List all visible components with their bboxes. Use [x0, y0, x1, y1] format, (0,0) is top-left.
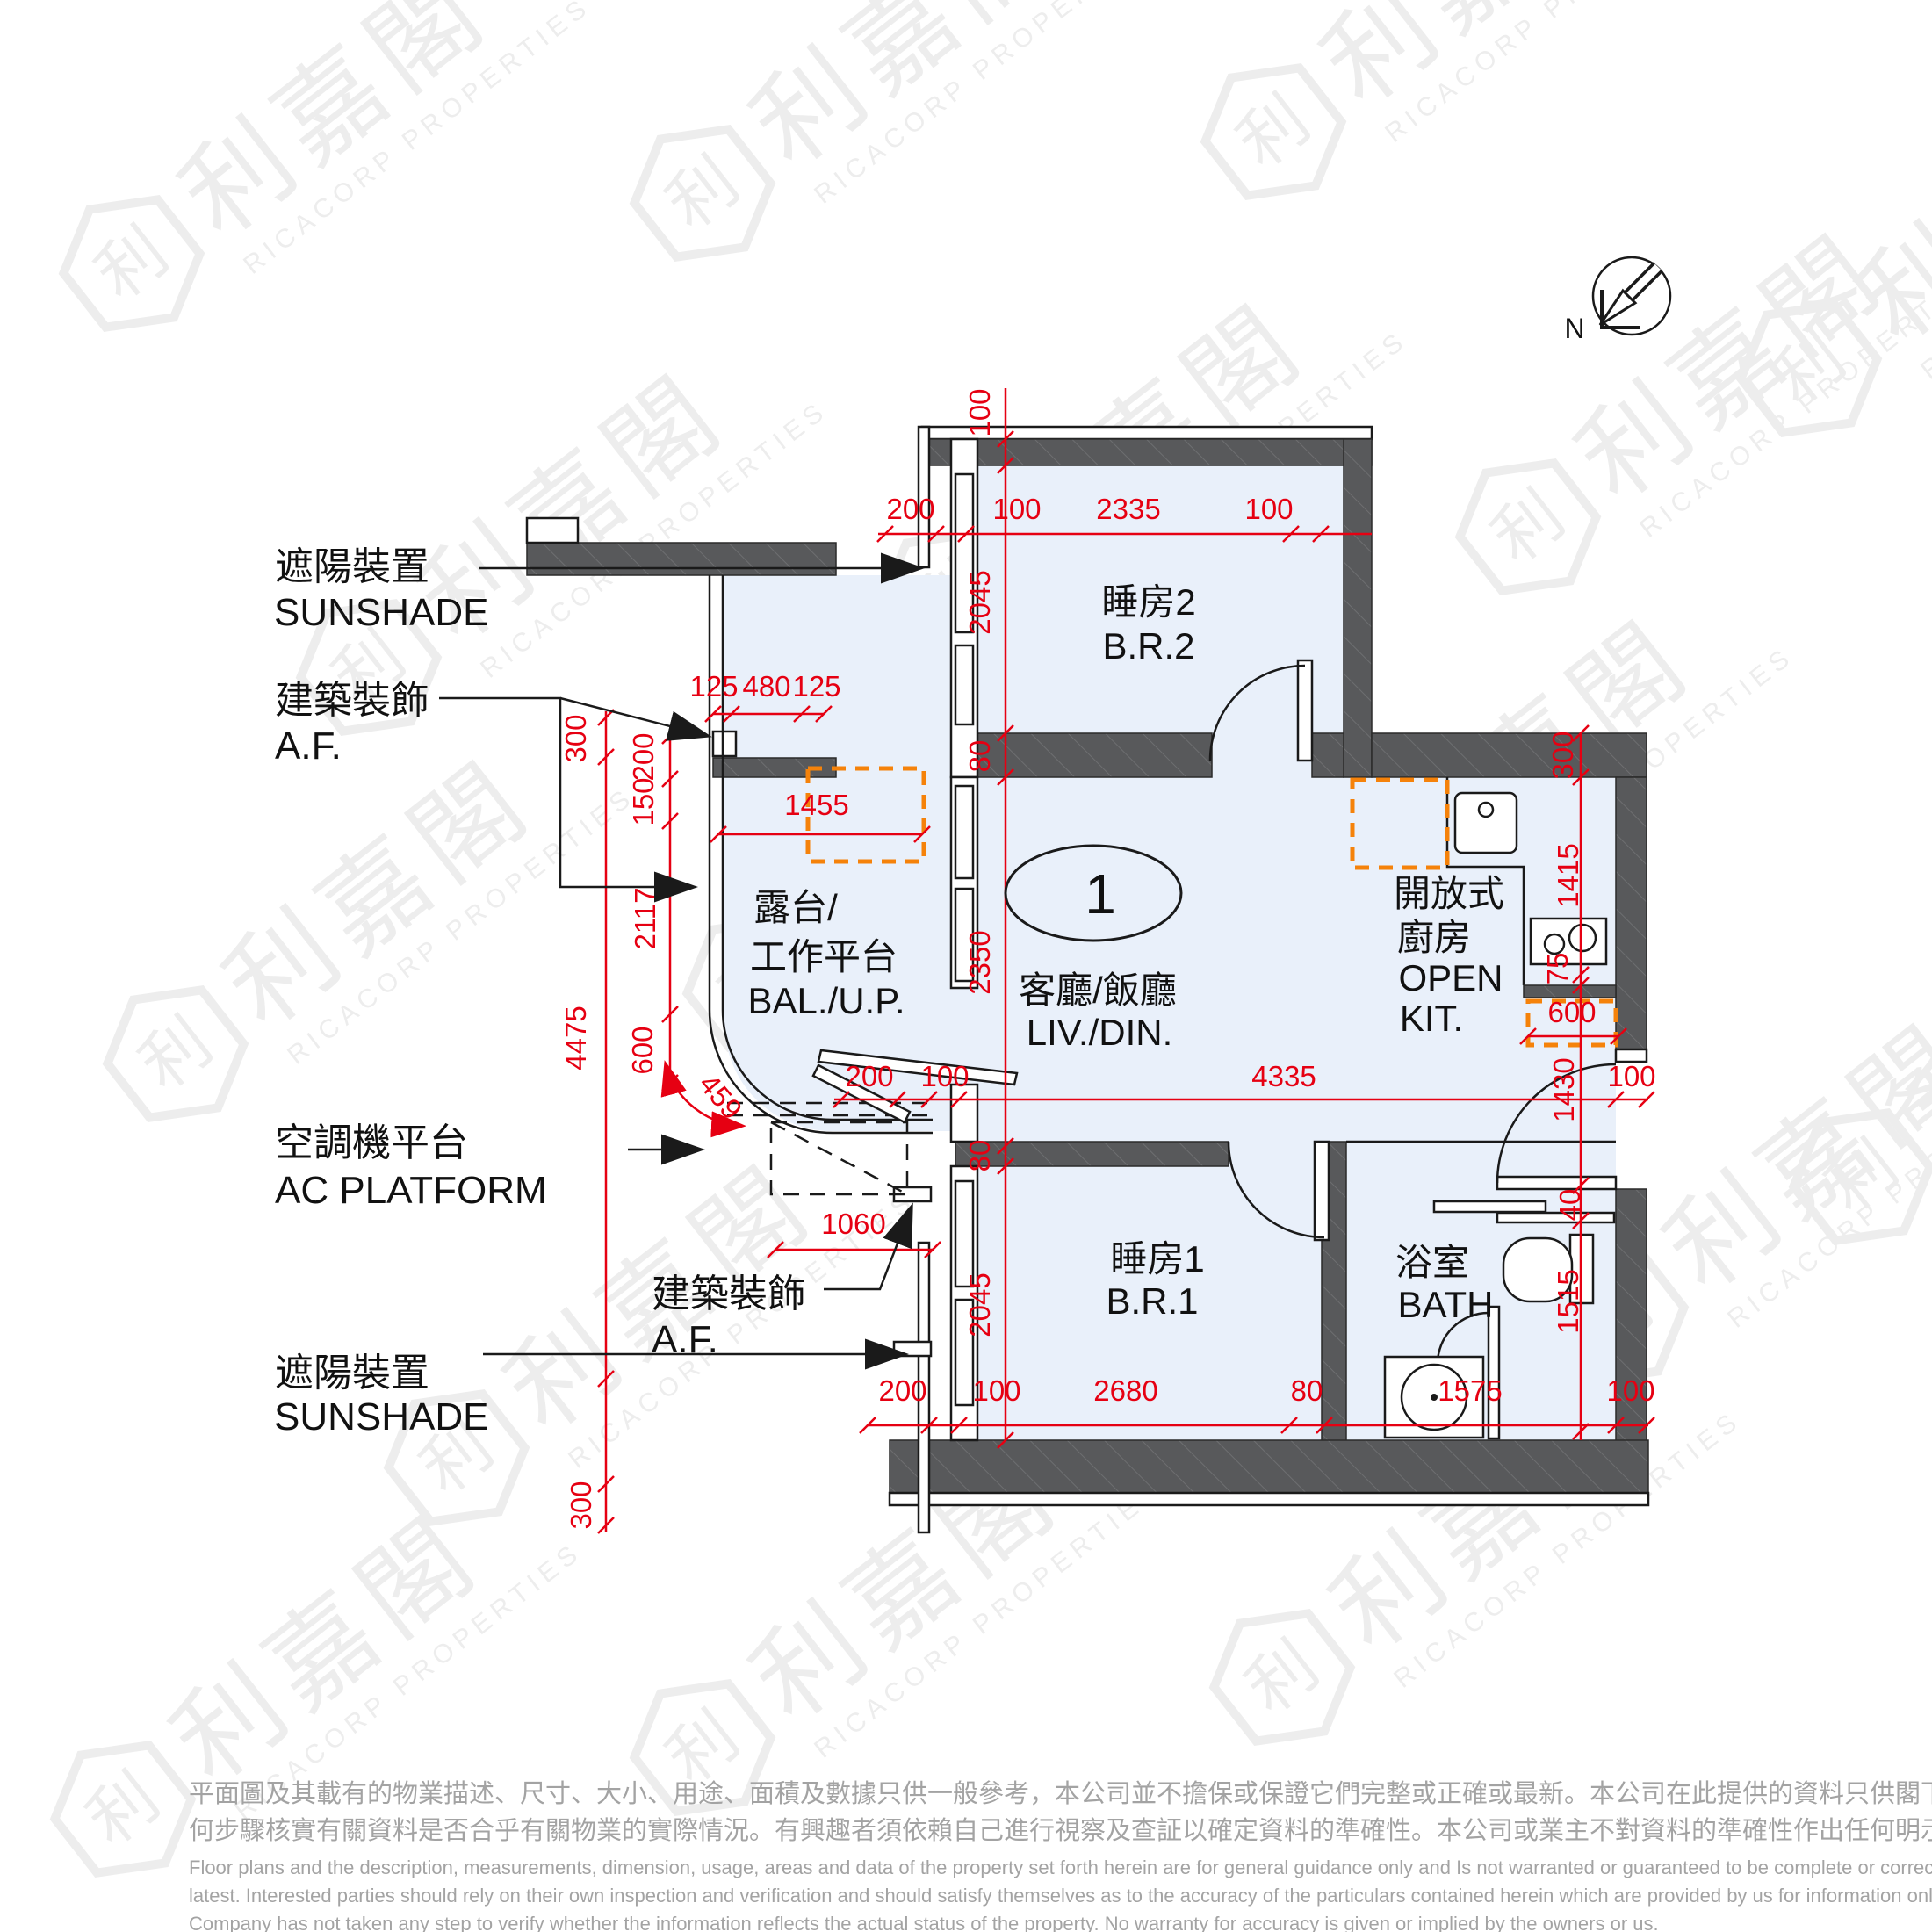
watermark-cjk-text: 利嘉閣 — [161, 0, 511, 258]
watermark-hex-char: 利 — [1233, 1628, 1331, 1728]
living-label-zh: 客廳/飯廳 — [1019, 970, 1177, 1011]
dimension-label: 80 — [963, 1140, 996, 1172]
balcony-label-en: BAL./U.P. — [748, 980, 905, 1021]
af-top-label-zh: 建築裝飾 — [275, 679, 429, 722]
br1-label-en: B.R.1 — [1106, 1280, 1198, 1322]
watermark-hex-char: 利 — [83, 214, 181, 314]
kitchen-label-en1: OPEN — [1398, 957, 1503, 998]
watermark-hex-char: 利 — [653, 144, 752, 244]
balcony-label-zh2: 工作平台 — [750, 936, 898, 977]
dimension-label: 75 — [1541, 953, 1574, 985]
living-br1-wall — [955, 1142, 1229, 1166]
living-label-en: LIV./DIN. — [1027, 1012, 1173, 1053]
balcony-af-fin — [713, 732, 736, 756]
balcony-floor — [724, 575, 951, 1131]
sunshade-bottom-label-zh: 遮陽裝置 — [275, 1352, 429, 1395]
dimension-label: 100 — [1244, 493, 1293, 525]
floor-plan-page: 利利嘉閣RICACORP PROPERTIES利利嘉閣RICACORP PROP… — [0, 0, 1932, 1932]
bath-shelf-1 — [1434, 1201, 1546, 1212]
dimension-label: 2335 — [1096, 493, 1160, 525]
dimension-label: 1430 — [1547, 1057, 1580, 1121]
watermark-hex-char: 利 — [1479, 478, 1577, 578]
br2-door-leaf — [1298, 660, 1312, 761]
bottom-wall — [890, 1440, 1648, 1493]
disclaimer-en-line1: Floor plans and the description, measure… — [189, 1856, 1932, 1878]
dimension-label: 1060 — [821, 1207, 885, 1240]
disclaimer: 平面圖及其載有的物業描述、尺寸、大小、用途、面積及數據只供一般參考，本公司並不擔… — [189, 1779, 1932, 1932]
dimension-label: 300 — [565, 1481, 597, 1529]
bottom-parapet — [890, 1493, 1648, 1505]
br2-right-wall — [1344, 439, 1372, 777]
right-wall-upper — [1616, 777, 1647, 1049]
kitchen-top-wall — [1372, 733, 1647, 777]
dimension-label: 80 — [963, 740, 996, 773]
exterior-af-band — [527, 543, 836, 575]
bath-label-en: BATH — [1398, 1284, 1494, 1325]
disclaimer-zh-line2: 何步驟核實有關資料是否合乎有關物業的實際情況。有興趣者須依賴自己進行視察及查証以… — [189, 1816, 1932, 1845]
br2-bottom-wall-stub — [1312, 733, 1344, 777]
dimension-label: 2680 — [1093, 1374, 1157, 1407]
dimension-label: 40 — [1554, 1189, 1586, 1222]
entrance-door-leaf — [1497, 1177, 1616, 1189]
watermark-hex-char: 利 — [74, 1760, 172, 1860]
dimension-label: 4335 — [1251, 1060, 1316, 1092]
living-window-1 — [955, 786, 973, 878]
sunshade-top-label-en: SUNSHADE — [274, 591, 489, 634]
dimension-label: 480 — [742, 670, 790, 703]
dimension-label: 1575 — [1438, 1374, 1502, 1407]
af-bottom-label-en: A.F. — [652, 1318, 718, 1361]
dimension-label: 300 — [559, 714, 592, 762]
kitchen-label-en2: KIT. — [1400, 998, 1463, 1039]
balcony-label-zh1: 露台/ — [753, 887, 838, 928]
watermark-hex-char: 利 — [1224, 83, 1323, 183]
watermark-logo: 利利嘉閣RICACORP PROPERTIES — [42, 0, 596, 371]
af-top-label-en: A.F. — [275, 724, 342, 768]
floor-plan-canvas: 利利嘉閣RICACORP PROPERTIES利利嘉閣RICACORP PROP… — [0, 0, 1932, 1932]
disclaimer-en-line2: latest. Interested parties should rely o… — [189, 1885, 1932, 1907]
dimension-label: 125 — [792, 670, 840, 703]
disclaimer-zh-line1: 平面圖及其載有的物業描述、尺寸、大小、用途、面積及數據只供一般參考，本公司並不擔… — [189, 1779, 1932, 1808]
dimension-label: 200 — [627, 732, 660, 781]
br1-door-opening — [1229, 1142, 1315, 1166]
dimension-label: 100 — [992, 493, 1041, 525]
compass-north-text: N — [1564, 313, 1584, 344]
dimension-label: 100 — [1607, 1060, 1655, 1092]
sunshade-top-label-zh: 遮陽裝置 — [275, 545, 429, 588]
watermark-logo: 利利嘉閣RICACORP PROPERTIES — [1438, 153, 1932, 634]
dimension-label: 2117 — [629, 888, 661, 950]
watermark-logo: 利利嘉閣RICACORP PROPERTIES — [613, 0, 1167, 300]
br2-window-2 — [955, 645, 973, 724]
br1-label-zh: 睡房1 — [1110, 1238, 1204, 1280]
af-bottom-label-zh: 建築裝飾 — [652, 1272, 806, 1316]
bath-basin-drain — [1431, 1394, 1438, 1401]
exterior-af-block — [527, 518, 578, 543]
br2-label-zh: 睡房2 — [1101, 581, 1195, 623]
dimension-label: 150 — [627, 777, 660, 825]
bath-label-zh: 浴室 — [1395, 1242, 1469, 1283]
ac-platform-label-en: AC PLATFORM — [275, 1169, 547, 1212]
watermark-hex-char: 利 — [126, 1005, 225, 1105]
dimension-label: 4475 — [559, 1006, 592, 1070]
dimension-label: 200 — [886, 493, 934, 525]
dimension-label: 600 — [1547, 996, 1596, 1028]
br2-label-en: B.R.2 — [1102, 625, 1194, 667]
bath-partition — [1489, 1307, 1499, 1438]
dimension-label: 1455 — [784, 789, 848, 821]
unit-number: 1 — [1085, 862, 1116, 926]
dimension-label: 200 — [845, 1060, 893, 1092]
dimension-label: 100 — [972, 1374, 1020, 1407]
dimension-label: 2045 — [963, 1272, 996, 1337]
br1-door-leaf — [1315, 1142, 1329, 1240]
dimension-label: 1515 — [1552, 1269, 1584, 1333]
dimension-label: 125 — [689, 670, 738, 703]
dimension-label: 100 — [1606, 1374, 1654, 1407]
dimension-label: 100 — [963, 388, 996, 436]
ac-platform-label-zh: 空調機平台 — [275, 1121, 468, 1164]
br1-window-1 — [955, 1181, 973, 1287]
dimension-label: 300 — [1546, 731, 1579, 779]
br2-top-wall — [922, 439, 1372, 465]
dimension-label: 200 — [878, 1374, 926, 1407]
north-compass: N — [1564, 257, 1670, 344]
watermark-logo: 利利嘉閣RICACORP PROPERTIES — [86, 680, 640, 1161]
watermark-logo: 利利嘉閣RICACORP PROPERTIES — [1184, 0, 1738, 239]
dimension-label: 2045 — [963, 570, 996, 634]
dimension-label: 80 — [1291, 1374, 1323, 1407]
dimension-label: 1415 — [1552, 843, 1584, 907]
kitchen-label-zh2: 廚房 — [1397, 917, 1471, 958]
sunshade-bottom-label-en: SUNSHADE — [274, 1395, 489, 1438]
dimension-label: 600 — [626, 1026, 659, 1074]
kitchen-label-zh1: 開放式 — [1394, 873, 1504, 914]
dimension-label: 100 — [920, 1060, 969, 1092]
dimension-label: 2350 — [963, 930, 996, 994]
disclaimer-en-line3: Company has not taken any step to verify… — [189, 1913, 1659, 1932]
